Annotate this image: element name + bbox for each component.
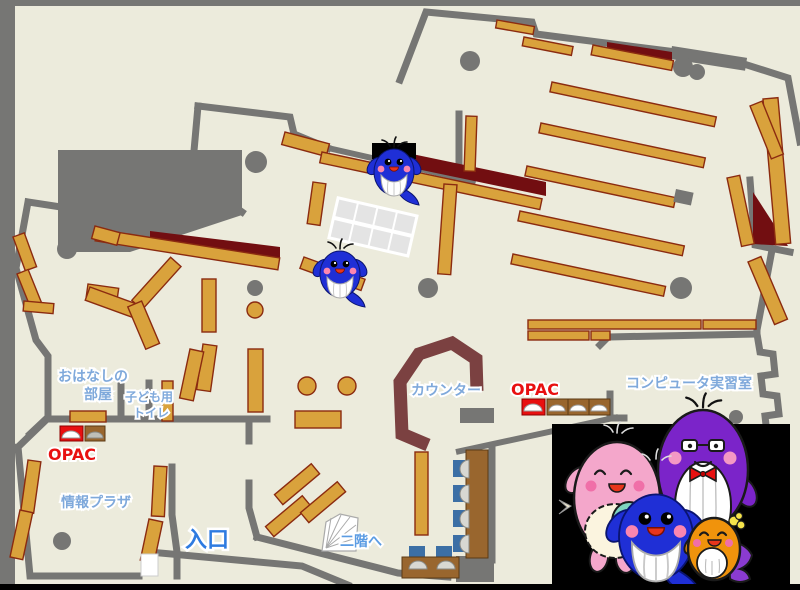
round-table: [298, 377, 316, 395]
label-info-plaza: 情報プラザ: [61, 494, 131, 511]
frame-top: [0, 0, 800, 6]
label-entrance: 入口: [185, 528, 229, 553]
label-counter: カウンター: [411, 383, 481, 399]
label-storytime-room-line2: 部屋: [84, 386, 112, 403]
opac-station-left: [60, 426, 105, 441]
label-kids-toilet-line1: 子ども用: [125, 390, 173, 404]
frame-left: [0, 0, 15, 584]
label-opac-left: OPAC: [48, 445, 96, 464]
floor-map-svg: おはなしの 部屋 子ども用 トイレ OPAC 情報プラザ 入口 カウンター OP…: [0, 0, 800, 590]
frame-bottom: [0, 584, 800, 590]
library-floor-map: おはなしの 部屋 子ども用 トイレ OPAC 情報プラザ 入口 カウンター OP…: [0, 0, 800, 590]
label-kids-toilet-line2: トイレ: [133, 406, 169, 420]
entrance-door: [141, 554, 158, 576]
opac-station-center: [522, 399, 610, 415]
return-box: [460, 408, 494, 423]
label-stairs-up: 二階へ: [340, 533, 382, 550]
label-opac-center: OPAC: [511, 380, 559, 399]
label-storytime-room-line1: おはなしの: [58, 369, 128, 385]
round-table: [338, 377, 356, 395]
label-computer-room: コンピュータ実習室: [626, 375, 752, 392]
